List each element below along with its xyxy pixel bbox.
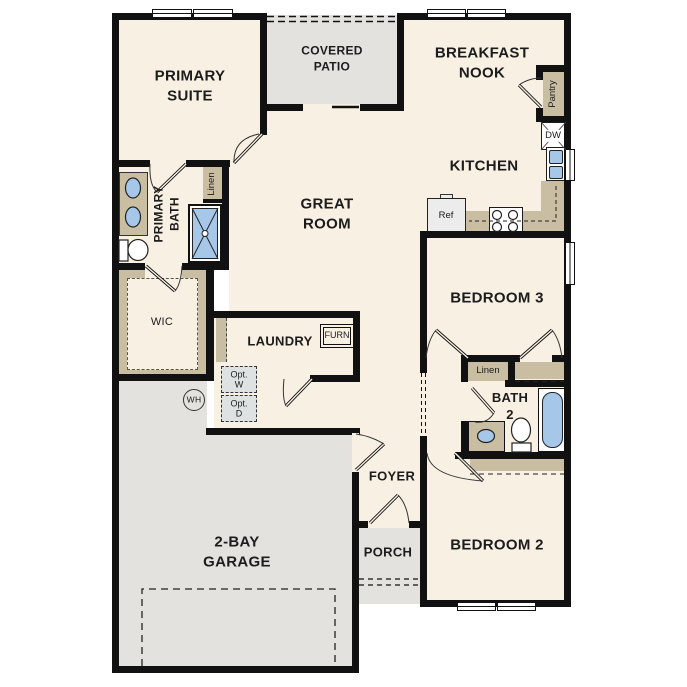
shower-pan [192,208,218,259]
wall-pantry-top [536,65,564,72]
bedroom2-window-2 [497,602,536,611]
wall-pantry-bottom [536,116,564,122]
wall-bedrooms-left-upper [420,231,427,373]
covered-patio-label: COVERED PATIO [301,43,362,74]
garage-foyer-door-opening [352,433,359,472]
sink-basin-bottom [549,166,563,179]
wall-pantry-left-lower [536,108,543,116]
floor-plan: PRIMARY SUITE COVERED PATIO BREAKFAST NO… [0,0,687,687]
porch-label: PORCH [364,545,412,562]
hall-cased-opening [420,373,427,436]
wall-garage-top [206,428,360,435]
wall-patio-bottom-left [260,104,303,111]
bedroom2-floor [427,452,564,600]
porch-floor [359,528,420,604]
wall-bath-great-room [222,167,229,270]
great-room-floor [229,167,360,311]
breakfast-nook-window-1 [427,9,466,18]
great-room-label: GREAT ROOM [301,195,354,234]
wall-bedroom2-top [455,452,571,459]
wic-label: WIC [151,315,173,329]
furnace-label: FURN [325,330,350,342]
suite-corner-opening-2 [230,160,267,167]
water-heater-label: WH [187,394,202,405]
wall-porch-front-right [409,521,420,528]
wall-patio-right [397,13,404,111]
wall-left [112,13,119,673]
hall-linen-label: Linen [476,365,499,377]
bedroom3-closet-shelf [515,362,564,379]
wall-kitchen-bedroom3 [420,231,571,238]
primary-suite-label: PRIMARY SUITE [155,67,226,106]
garage-label: 2-BAY GARAGE [203,533,271,572]
wall-suite-right [260,13,267,135]
bath-door-opening [150,160,186,167]
wall-garage-right-lower [352,472,359,673]
wall-suite-bottom-right [186,160,230,167]
wall-laundry-right [353,311,360,377]
dishwasher-label: DW [544,130,562,142]
wall-bath2-top [505,380,571,387]
laundry-cabinet [216,318,227,362]
bedroom2-window-1 [457,602,496,611]
wic-door-opening [145,263,182,278]
bedroom2-label: BEDROOM 2 [450,535,544,555]
primary-linen-label: Linen [206,172,218,195]
pantry-label: Pantry [547,80,559,107]
primary-suite-window-1 [152,9,192,18]
wall-garage-bottom [112,666,352,673]
bath2-vanity [468,421,505,452]
bath2-label: BATH 2 [492,390,528,424]
bathtub-basin [542,392,563,448]
breakfast-nook-label: BREAKFAST NOOK [435,44,529,83]
front-door-opening [368,521,409,528]
optional-washer-label: Opt. W [230,370,247,391]
wall-patio-bottom-right [360,104,404,111]
bedroom3-label: BEDROOM 3 [450,288,544,308]
wall-pantry-left-upper [536,72,543,80]
foyer-label: FOYER [369,469,415,486]
wall-wic-right [206,267,214,381]
wall-wic-bottom-garage-top [112,374,214,381]
breakfast-nook-window-2 [467,9,506,18]
wall-right [564,13,571,607]
sliding-door-opening [303,104,360,111]
sink-basin-top [549,150,563,164]
bedroom3-window [565,242,575,285]
wall-bath-bottom-left [112,263,145,270]
refrigerator-label: Ref [439,210,454,222]
primary-vanity-counter [119,172,148,236]
wall-bedrooms-left-lower [420,436,427,604]
wall-bedroom3-bottom-right [552,355,571,362]
optional-dryer-label: Opt. D [230,399,247,420]
wall-hall-linen-left [461,355,468,382]
garage-floor-left [119,381,207,666]
wall-laundry-bottom [310,375,360,382]
wall-porch-front-left [352,521,368,528]
primary-bath-label: PRIMARY BATH [151,186,182,243]
bedroom2-closet-shelf [470,459,564,471]
primary-suite-window-2 [193,9,233,18]
laundry-label: LAUNDRY [247,334,312,351]
kitchen-label: KITCHEN [450,156,519,176]
wall-laundry-top [206,311,360,318]
kitchen-window [565,149,575,181]
wall-suite-bottom-left [112,160,150,167]
